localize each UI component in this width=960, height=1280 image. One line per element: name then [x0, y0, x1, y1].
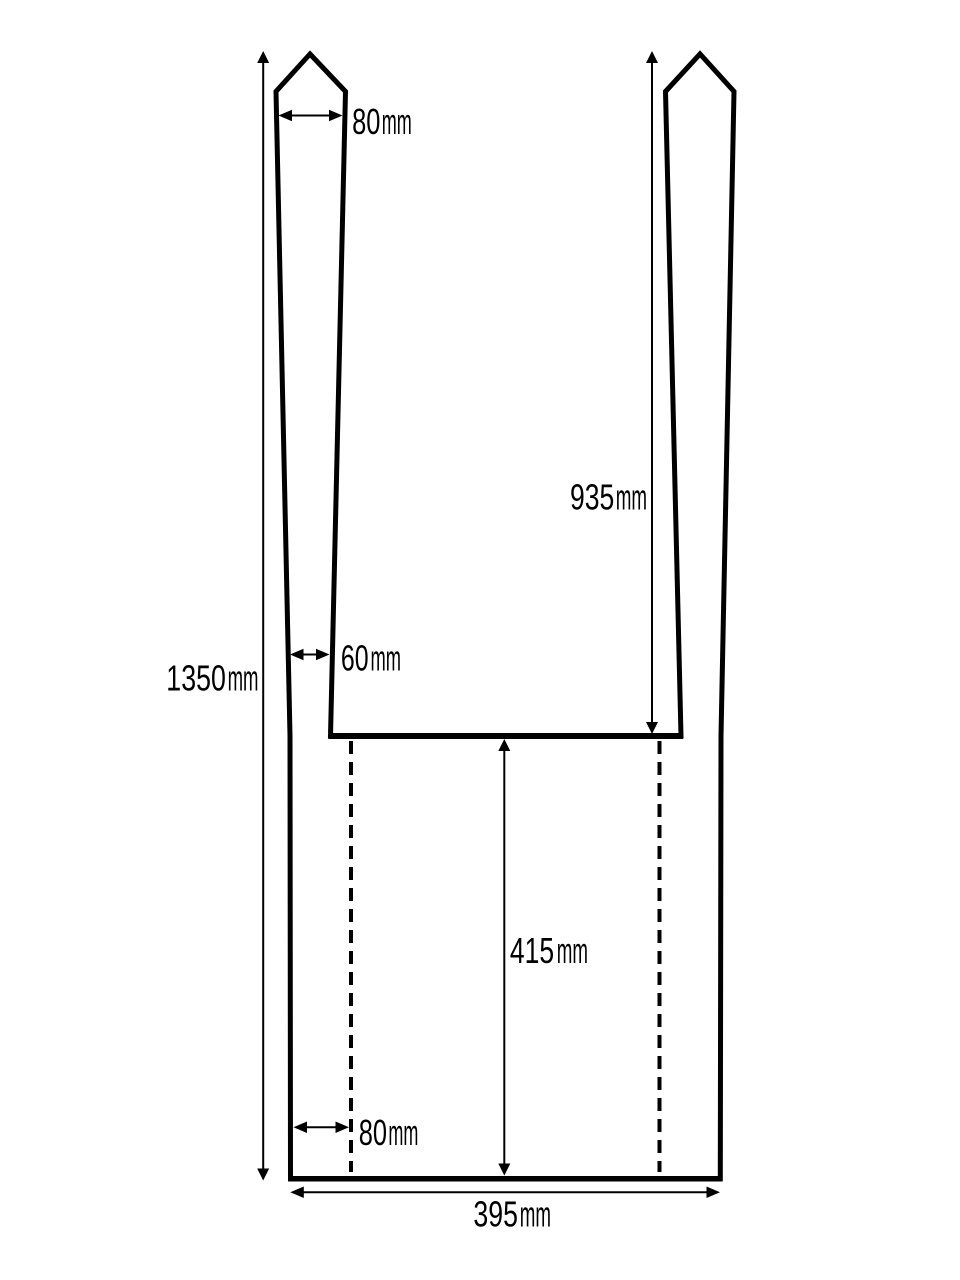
- svg-text:80mm: 80mm: [352, 101, 412, 142]
- svg-text:60mm: 60mm: [341, 638, 401, 679]
- svg-text:395mm: 395mm: [473, 1194, 551, 1235]
- svg-text:80mm: 80mm: [359, 1112, 419, 1153]
- svg-text:415mm: 415mm: [510, 930, 588, 971]
- svg-text:1350mm: 1350mm: [166, 658, 258, 699]
- svg-text:935mm: 935mm: [570, 477, 647, 518]
